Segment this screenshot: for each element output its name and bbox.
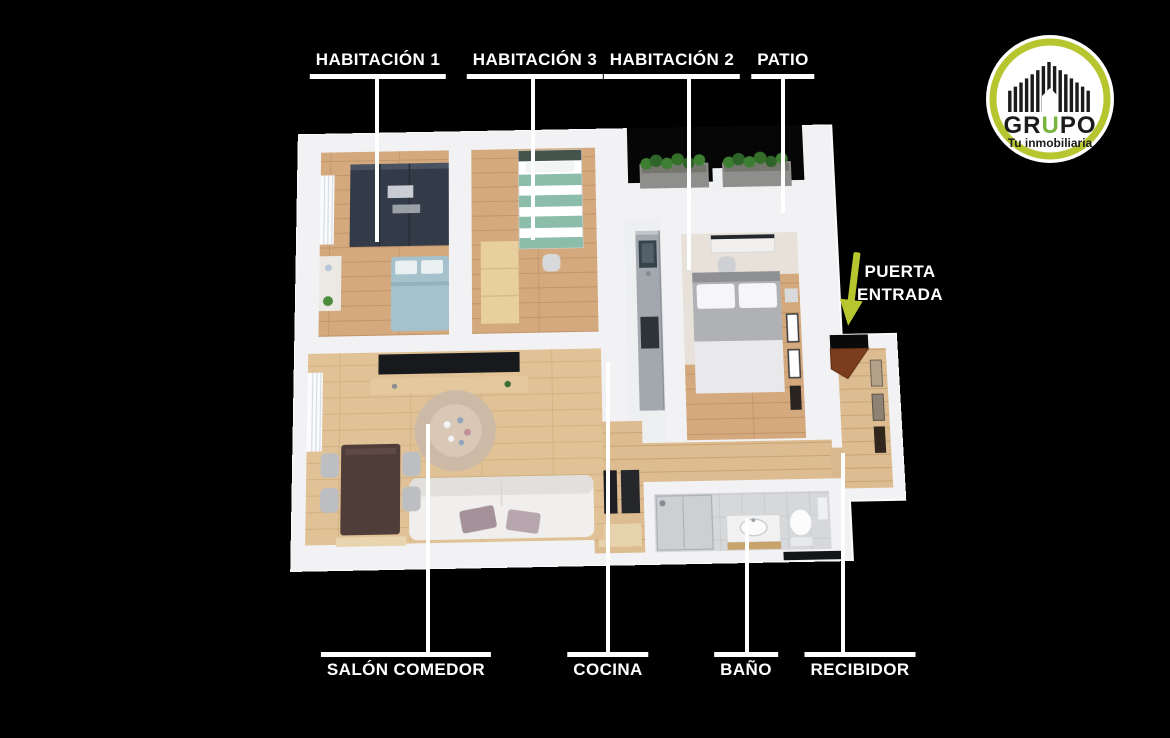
leader-line-habitacion-1 [375,77,379,242]
label-text: BAÑO [714,652,778,680]
logo-wordmark: GRUPO [1003,112,1096,139]
room-salon-comedor [305,348,605,547]
label-text: HABITACIÓN 2 [604,50,740,79]
leader-line-patio [781,77,785,213]
room-habitacion-1 [318,150,449,336]
leader-line-cocina [606,362,610,652]
entrance-arrow-icon [833,250,871,334]
label-habitacion-3: HABITACIÓN 3 [467,50,603,79]
logo-grupo-tu-inmobiliaria: GRUPO Tu inmobiliaria [983,32,1117,166]
label-habitacion-2: HABITACIÓN 2 [604,50,740,79]
label-text: PATIO [751,50,814,79]
label-text: HABITACIÓN 1 [310,50,446,79]
leader-line-habitacion-3 [531,77,535,240]
label-habitacion-1: HABITACIÓN 1 [310,50,446,79]
label-text: SALÓN COMEDOR [321,652,491,680]
label-salon-comedor: SALÓN COMEDOR [321,652,491,680]
label-text: COCINA [567,652,648,680]
logo-accent-letter: U [1041,112,1059,139]
room-cocina [624,218,667,452]
floorplan-svg [290,123,909,572]
leader-line-habitacion-2 [687,77,691,270]
leader-line-recibidor [841,453,845,652]
leader-line-bano [745,518,749,652]
floorplan-3d-render [290,123,909,572]
label-cocina: COCINA [567,652,648,680]
label-bano: BAÑO [714,652,778,680]
label-recibidor: RECIBIDOR [805,652,916,680]
room-patio [627,125,805,202]
floorplan-image: HABITACIÓN 1 HABITACIÓN 3 HABITACIÓN 2 P… [0,0,1170,738]
leader-line-salon-comedor [426,424,430,652]
room-habitacion-2 [681,232,806,440]
label-patio: PATIO [751,50,814,79]
label-text: HABITACIÓN 3 [467,50,603,79]
label-text: RECIBIDOR [805,652,916,680]
logo-tagline: Tu inmobiliaria [1008,136,1093,150]
